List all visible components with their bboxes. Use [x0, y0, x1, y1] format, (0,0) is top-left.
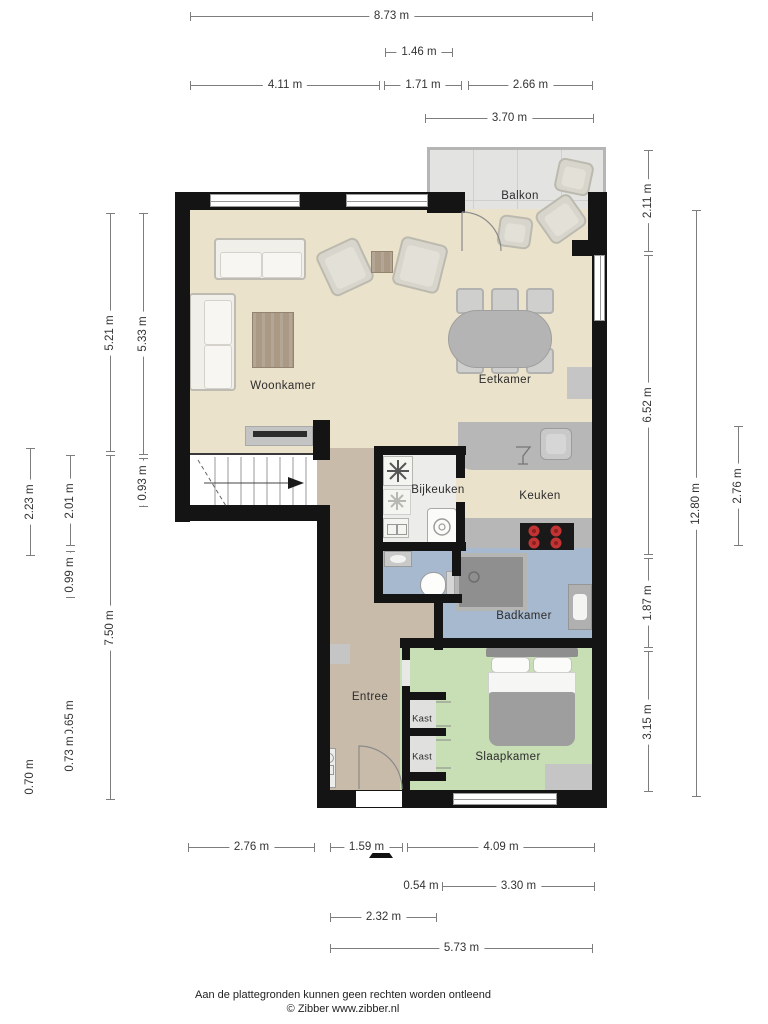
window-bedroom [453, 793, 557, 805]
dim-label: 4.11 m [263, 79, 307, 91]
bed-sheet [488, 672, 576, 694]
wall-bedroom-left-upper [402, 648, 410, 660]
tv-cabinet [245, 426, 313, 446]
dim-label: 2.76 m [732, 463, 744, 508]
dim-label: 5.73 m [439, 942, 484, 954]
dim-bottom-054: 0.54 m [400, 880, 441, 892]
footer-disclaimer: Aan de plattegronden kunnen geen rechten… [195, 988, 491, 1002]
toilet-sink [384, 551, 412, 567]
stairwell-floor [190, 453, 317, 507]
bed-duvet [489, 692, 575, 746]
room-label-entree: Entree [352, 691, 388, 703]
dim-label: 5.33 m [137, 311, 149, 356]
dim-top-411: 4.11 m [190, 85, 380, 86]
dim-label: 2.66 m [508, 79, 553, 91]
dim-label: 2.11 m [642, 179, 654, 223]
dim-top-146: 1.46 m [385, 52, 453, 53]
wall-utility-right-upper [456, 446, 465, 478]
wall-closet-bottom [402, 772, 446, 781]
dim-label: 4.09 m [478, 841, 523, 853]
dim-label: 1.59 m [344, 841, 389, 853]
dim-label: 0.99 m [64, 552, 76, 597]
footer-credit: © Zibber www.zibber.nl [195, 1002, 491, 1016]
dim-left-093: 0.93 m [143, 458, 144, 507]
dim-left-750: 7.50 m [110, 455, 111, 800]
dim-label: 1.71 m [400, 79, 445, 91]
dim-right-652: 6.52 m [648, 255, 649, 555]
dim-label: 2.32 m [361, 911, 406, 923]
wall-chimney [313, 420, 330, 460]
dim-top-873: 8.73 m [190, 16, 593, 17]
dim-right-187: 1.87 m [648, 558, 649, 648]
sofa-cushion [204, 300, 232, 345]
wall-toilet-bottom [374, 594, 462, 603]
dim-left-533: 5.33 m [143, 213, 144, 455]
room-label-balkon: Balkon [501, 190, 539, 202]
room-label-woonkamer: Woonkamer [250, 380, 315, 392]
dim-top-266: 2.66 m [468, 85, 593, 86]
dim-label: 2.76 m [229, 841, 274, 853]
bed-headboard [486, 648, 578, 657]
toilet-sink-basin [390, 555, 406, 563]
bathroom-sink [568, 584, 592, 630]
wall-balcony-corner [572, 240, 607, 256]
wall-toilet-right [452, 548, 461, 576]
wall-left [175, 192, 190, 522]
dim-label: 8.73 m [369, 10, 414, 22]
dim-label: 7.50 m [104, 605, 116, 650]
wall-right [592, 247, 607, 808]
dim-label: 6.52 m [642, 382, 654, 427]
dim-label: 3.15 m [642, 699, 654, 744]
side-table [371, 251, 393, 273]
dim-bottom-159: 1.59 m [330, 847, 403, 848]
wall-lower-left [317, 505, 330, 792]
sofa-left [189, 293, 236, 391]
dim-left-223: 2.23 m [30, 448, 31, 556]
wall-utility-top [374, 446, 466, 455]
cabinet-knob [397, 524, 407, 535]
dim-bottom-330: 3.30 m [442, 886, 595, 887]
kitchen-sink [540, 428, 572, 460]
wall-closet-top [402, 692, 446, 700]
bedroom-rug [545, 764, 597, 790]
bed-pillow [533, 657, 572, 673]
dim-left-073: 0.73 m [64, 733, 76, 774]
wall-stair-bottom [175, 505, 330, 521]
dim-right-276: 2.76 m [738, 426, 739, 546]
sofa-cushion [204, 345, 232, 389]
armchair-seat [399, 244, 441, 287]
dim-right-211: 2.11 m [648, 150, 649, 252]
room-label-keuken: Keuken [519, 490, 560, 502]
cabinet-knob [387, 524, 397, 535]
balcony-chair-seat [543, 202, 580, 238]
dining-table [448, 310, 552, 368]
dim-label: 0.93 m [137, 460, 149, 505]
dim-label: 1.87 m [642, 580, 654, 625]
front-door-opening [356, 791, 402, 807]
bedroom-door-opening [402, 660, 410, 686]
dim-top-370: 3.70 m [425, 118, 594, 119]
kitchen-sink-basin [546, 434, 566, 454]
dim-label: 3.30 m [496, 880, 541, 892]
wall-balcony-left-block [427, 197, 465, 213]
dim-left-065: 0.65 m [64, 697, 76, 738]
dim-bottom-276: 2.76 m [188, 847, 315, 848]
sofa-top [214, 238, 306, 280]
dim-right-315: 3.15 m [648, 651, 649, 792]
footer: Aan de plattegronden kunnen geen rechten… [195, 988, 491, 1016]
dim-label: 5.21 m [104, 310, 116, 355]
dryer [383, 489, 411, 515]
sofa-cushion [262, 252, 302, 278]
dim-right-1280: 12.80 m [696, 210, 697, 797]
utility-cabinet [383, 518, 409, 538]
armchair-seat [324, 246, 367, 290]
wall-utility-left [374, 446, 383, 603]
room-label-badkamer: Badkamer [496, 610, 552, 622]
dim-label: 2.01 m [64, 478, 76, 523]
dim-bottom-573: 5.73 m [330, 948, 593, 949]
room-label-kast-2: Kast [412, 752, 432, 763]
balcony-chair-seat [561, 166, 587, 190]
boiler [427, 508, 457, 546]
dim-top-171: 1.71 m [384, 85, 462, 86]
shower [455, 553, 527, 611]
window-living-right [346, 194, 428, 207]
dim-left-099: 0.99 m [70, 551, 71, 598]
washing-machine [383, 456, 413, 486]
dim-bottom-232: 2.32 m [330, 917, 437, 918]
window-living-left [210, 194, 300, 207]
coffee-table [252, 312, 294, 368]
stove [520, 523, 574, 550]
wall-bedroom-top [400, 638, 607, 648]
floor-plan-page: Balkon Woonkamer Eetkamer Keuken Bijkeuk… [0, 0, 768, 1024]
dim-left-070: 0.70 m [24, 756, 36, 797]
wall-closet-mid [402, 728, 446, 736]
room-label-kast-1: Kast [412, 714, 432, 725]
dim-left-521: 5.21 m [110, 213, 111, 452]
dim-label: 2.23 m [24, 479, 36, 524]
room-label-eetkamer: Eetkamer [479, 374, 531, 386]
bed-pillow [491, 657, 530, 673]
kitchen-cabinet [567, 367, 592, 399]
dim-bottom-409: 4.09 m [407, 847, 595, 848]
balcony-chair-seat [504, 223, 526, 244]
bathroom-sink-basin [573, 594, 587, 620]
sofa-cushion [220, 252, 262, 278]
tv-screen [253, 431, 307, 437]
room-label-bijkeuken: Bijkeuken [411, 484, 464, 496]
dim-label: 12.80 m [690, 478, 702, 530]
window-dining-right [594, 255, 605, 321]
dim-left-201: 2.01 m [70, 455, 71, 546]
dim-label: 1.46 m [396, 46, 441, 58]
room-label-slaapkamer: Slaapkamer [475, 751, 540, 763]
hall-cabinet [328, 644, 350, 664]
balcony-chair [496, 214, 534, 250]
dim-label: 3.70 m [487, 112, 532, 124]
